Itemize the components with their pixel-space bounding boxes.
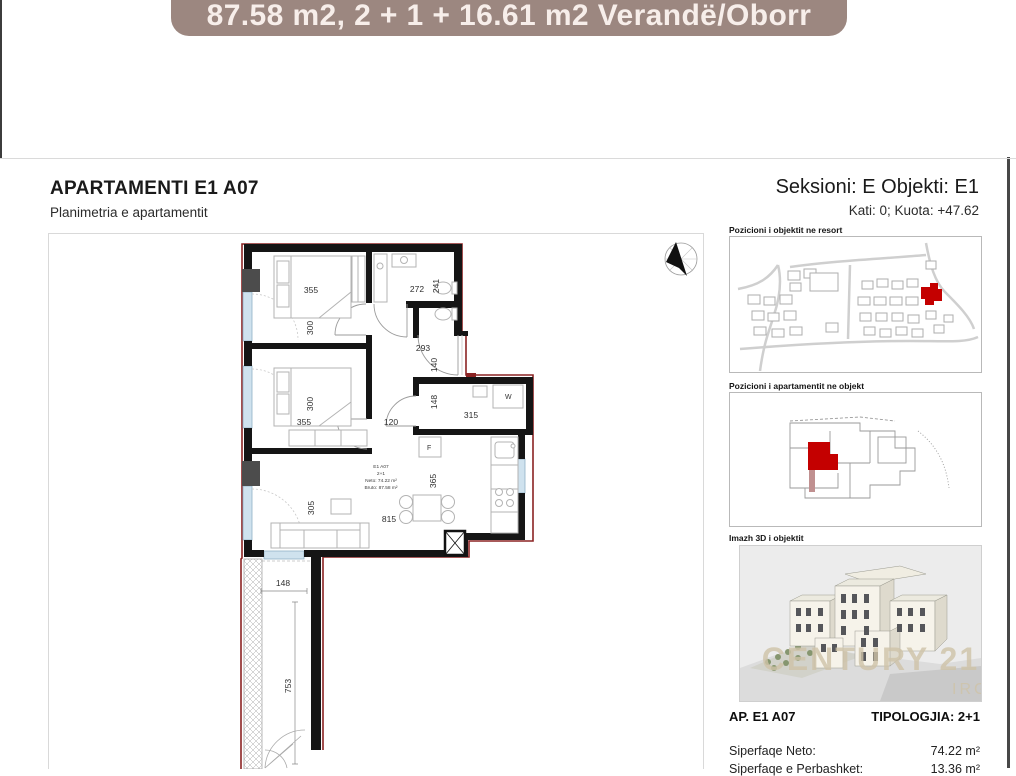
page-subtitle: Planimetria e apartamentit bbox=[50, 205, 259, 220]
area-banner: 87.58 m2, 2 + 1 + 16.61 m2 Verandë/Oborr bbox=[171, 0, 847, 36]
dim-bath1-height: 241 bbox=[431, 279, 441, 293]
page-edge-left bbox=[0, 0, 2, 158]
washer-label: W bbox=[505, 394, 512, 401]
section-title: Seksioni: E Objekti: E1 bbox=[776, 176, 979, 199]
dim-bath2-height: 148 bbox=[429, 395, 439, 409]
apartment-code: AP. E1 A07 bbox=[729, 709, 796, 724]
dim-bath2-width: 315 bbox=[464, 410, 478, 420]
dim-bed1-height: 300 bbox=[305, 321, 315, 335]
apartment-summary-row: AP. E1 A07 TIPOLOGJIA: 2+1 bbox=[729, 709, 980, 724]
fridge-label: F bbox=[427, 445, 431, 452]
net-area-row: Siperfaqe Neto: 74.22 m² bbox=[729, 744, 980, 758]
shared-area-value: 13.36 m² bbox=[931, 762, 980, 776]
dim-living-height: 305 bbox=[306, 501, 316, 515]
dim-hall-width: 120 bbox=[384, 417, 398, 427]
header-right: Seksioni: E Objekti: E1 Kati: 0; Kuota: … bbox=[776, 176, 979, 218]
dim-corridor-height: 140 bbox=[429, 358, 439, 372]
north-compass-icon bbox=[665, 242, 697, 276]
level-info: Kati: 0; Kuota: +47.62 bbox=[776, 203, 979, 218]
dim-bed2-height: 300 bbox=[305, 397, 315, 411]
info-type: 2+1 bbox=[377, 471, 385, 477]
map1-label: Pozicioni i objektit ne resort bbox=[729, 225, 842, 235]
shared-area-label: Siperfaqe e Perbashket: bbox=[729, 762, 863, 776]
dim-veranda-height: 753 bbox=[283, 679, 293, 693]
floorplan-drawing: W F 355 300 272 241 293 140 300 355 120 … bbox=[49, 234, 703, 769]
info-bruto: Bruto: 87.58 m² bbox=[364, 485, 397, 491]
dim-bath1-width: 272 bbox=[410, 284, 424, 294]
shared-area-row: Siperfaqe e Perbashket: 13.36 m² bbox=[729, 762, 980, 776]
dim-bed2-width: 355 bbox=[297, 417, 311, 427]
dim-corridor-width: 293 bbox=[416, 343, 430, 353]
net-area-value: 74.22 m² bbox=[931, 744, 980, 758]
doors bbox=[335, 304, 462, 449]
dim-veranda-width: 148 bbox=[276, 578, 290, 588]
banner-text: 87.58 m2, 2 + 1 + 16.61 m2 Verandë/Oborr bbox=[207, 1, 812, 36]
apartment-position-map bbox=[729, 392, 982, 527]
header-divider bbox=[0, 158, 1016, 159]
watermark-irg: IRG bbox=[952, 681, 981, 698]
info-code: E1 A07 bbox=[373, 464, 389, 470]
page-edge-right bbox=[1007, 157, 1010, 768]
typology: TIPOLOGJIA: 2+1 bbox=[871, 709, 980, 724]
watermark-century21: CENTURY 21. bbox=[762, 641, 981, 677]
resort-position-map bbox=[729, 236, 982, 373]
building-3d-image: CENTURY 21. IRG bbox=[739, 545, 982, 702]
image3d-label: Imazh 3D i objektit bbox=[729, 533, 804, 543]
dim-bed1-width: 355 bbox=[304, 285, 318, 295]
apartment-info-block: E1 A07 2+1 Neto: 74.22 m² Bruto: 87.58 m… bbox=[364, 464, 397, 491]
spiral-stair bbox=[265, 730, 305, 768]
walls bbox=[244, 244, 533, 750]
map2-veranda-strip bbox=[809, 470, 815, 492]
shaft-box bbox=[445, 531, 465, 555]
dim-living-width: 815 bbox=[382, 514, 396, 524]
page-title: APARTAMENTI E1 A07 bbox=[50, 178, 259, 200]
header-left: APARTAMENTI E1 A07 Planimetria e apartam… bbox=[50, 178, 259, 220]
map1-highlighted-building bbox=[921, 283, 942, 305]
floorplan-area: W F 355 300 272 241 293 140 300 355 120 … bbox=[48, 233, 704, 769]
info-neto: Neto: 74.22 m² bbox=[365, 478, 397, 484]
map2-label: Pozicioni i apartamentit ne objekt bbox=[729, 381, 864, 391]
net-area-label: Siperfaqe Neto: bbox=[729, 744, 816, 758]
veranda bbox=[244, 559, 311, 769]
map1-roads bbox=[738, 243, 978, 371]
dim-kitchen-height: 365 bbox=[428, 474, 438, 488]
